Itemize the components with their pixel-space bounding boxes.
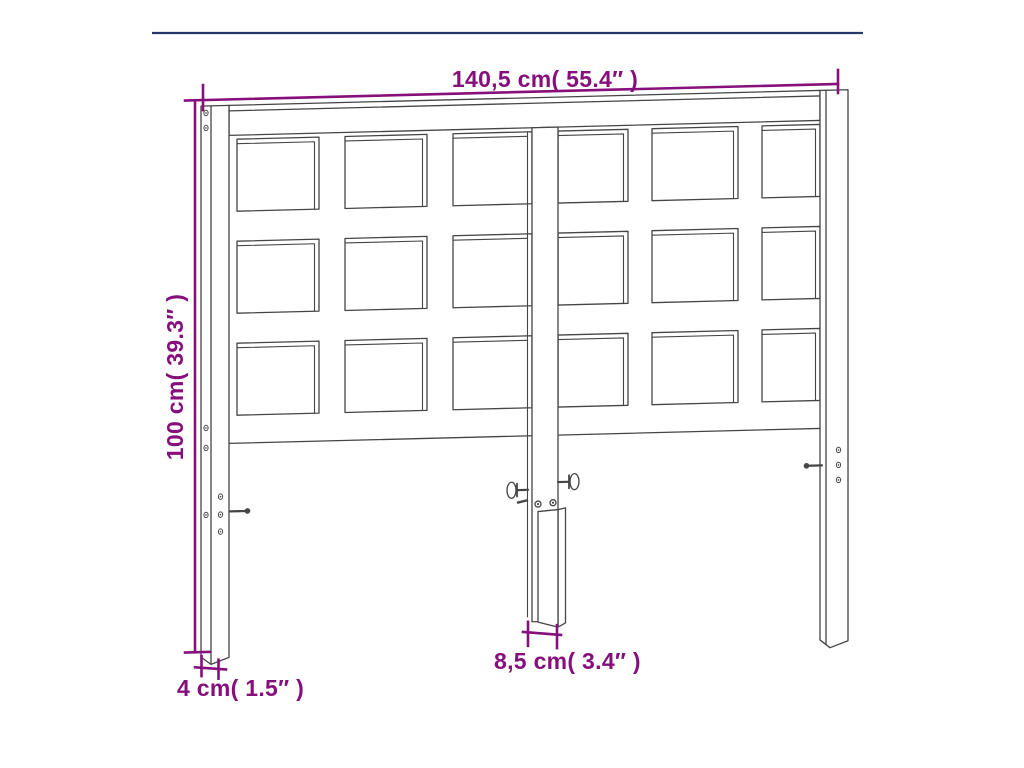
width-dimension-label: 140,5 cm( 55.4″ ) — [452, 66, 638, 92]
thumb-screw-right — [558, 474, 579, 491]
right-post — [804, 90, 848, 649]
bracket-screw-right — [550, 500, 556, 506]
dimension-lines — [185, 69, 838, 680]
height-dimension-label: 100 cm( 39.3″ ) — [162, 294, 188, 460]
headboard-dimension-diagram: 140,5 cm( 55.4″ ) 100 cm( 39.3″ ) 4 cm( … — [0, 0, 1024, 768]
dowel-pin — [518, 500, 527, 502]
bracket-screw-left — [535, 501, 541, 507]
dimension-labels: 140,5 cm( 55.4″ ) 100 cm( 39.3″ ) 4 cm( … — [162, 66, 641, 701]
diagram-canvas: 140,5 cm( 55.4″ ) 100 cm( 39.3″ ) 4 cm( … — [0, 0, 1024, 768]
thumb-screw-left — [507, 482, 528, 499]
leg-width-dimension-label: 8,5 cm( 3.4″ ) — [494, 648, 641, 674]
grid-openings-row-2 — [237, 226, 820, 313]
grid-openings-row-3 — [237, 328, 820, 415]
center-leg-bracket — [535, 499, 566, 627]
post-thickness-dimension-label: 4 cm( 1.5″ ) — [177, 675, 304, 701]
headboard-drawing — [201, 90, 848, 665]
right-post-bolt — [804, 463, 822, 469]
grid-openings-row-1 — [237, 124, 820, 211]
right-post-holes — [836, 447, 840, 483]
bottom-rail-edge — [229, 428, 820, 443]
left-post — [201, 105, 250, 665]
left-post-bolt — [230, 508, 250, 514]
